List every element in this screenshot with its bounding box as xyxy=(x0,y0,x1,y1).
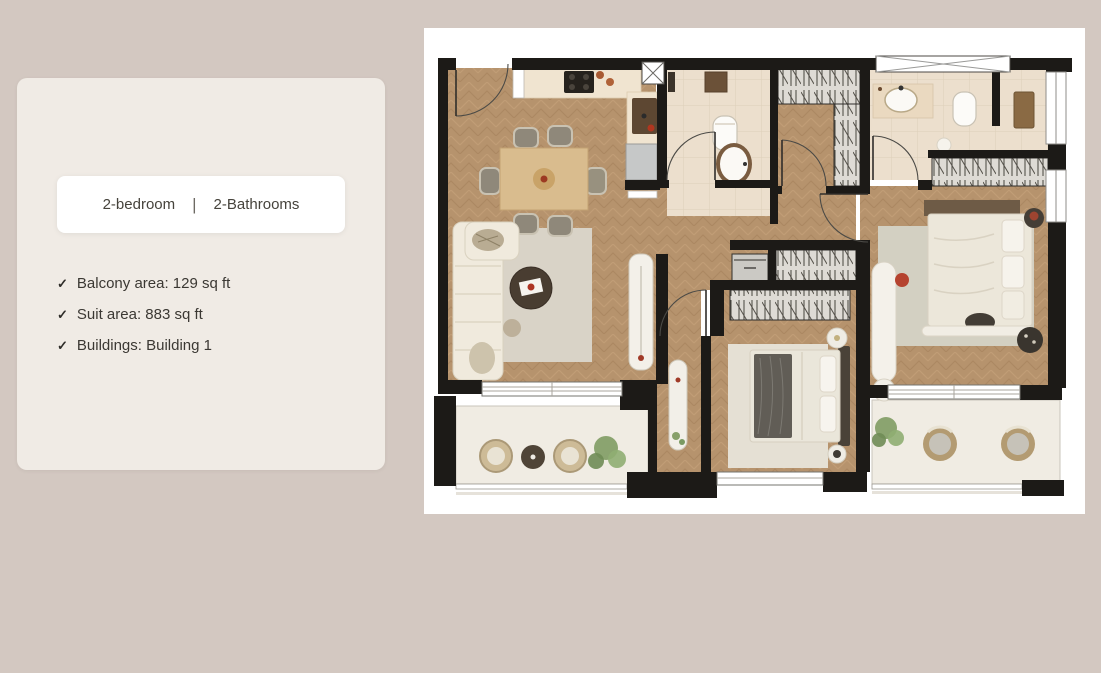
check-icon: ✓ xyxy=(57,274,68,294)
feature-balcony-area: ✓ Balcony area: 129 sq ft xyxy=(57,274,230,294)
pill-divider: | xyxy=(192,195,196,215)
summary-card: Total area: 1,012 sq ft 2-bedroom | 2-Ba… xyxy=(17,78,385,470)
balcony-1 xyxy=(456,406,648,495)
cooktop-icon xyxy=(564,71,594,93)
chair-icon xyxy=(548,126,572,146)
pot-icon xyxy=(596,71,604,79)
cabinet-icon xyxy=(705,72,727,92)
floorplan-svg xyxy=(424,28,1085,514)
feature-suit-area: ✓ Suit area: 883 sq ft xyxy=(57,305,230,325)
pot-icon xyxy=(606,78,614,86)
bedrooms-label: 2-bedroom xyxy=(103,196,176,213)
appliance-icon xyxy=(626,144,657,180)
armchair-icon xyxy=(923,427,957,461)
chair-icon xyxy=(586,168,606,194)
feature-text: Buildings: Building 1 xyxy=(77,336,212,356)
unit-type-pill: 2-bedroom | 2-Bathrooms xyxy=(57,176,345,233)
bench-icon xyxy=(1014,92,1034,128)
chair-icon xyxy=(514,128,538,148)
bathrooms-label: 2-Bathrooms xyxy=(214,196,300,213)
bathroom-sink-icon xyxy=(885,88,917,112)
feature-text: Balcony area: 129 sq ft xyxy=(77,274,230,294)
check-icon: ✓ xyxy=(57,336,68,356)
floorplan-panel xyxy=(424,28,1085,514)
armchair-icon xyxy=(1001,427,1035,461)
vase-icon xyxy=(895,273,909,287)
feature-text: Suit area: 883 sq ft xyxy=(77,305,203,325)
feature-buildings: ✓ Buildings: Building 1 xyxy=(57,336,230,356)
chair-icon xyxy=(480,168,500,194)
chaise-icon xyxy=(872,262,896,382)
side-table-icon xyxy=(1017,327,1043,353)
check-icon: ✓ xyxy=(57,305,68,325)
feature-list: ✓ Balcony area: 129 sq ft ✓ Suit area: 8… xyxy=(57,274,230,367)
chair-icon xyxy=(548,216,572,236)
balcony-2 xyxy=(872,400,1060,494)
toilet-icon xyxy=(953,92,976,126)
pouf-icon xyxy=(503,319,521,337)
page: Total area: 1,012 sq ft 2-bedroom | 2-Ba… xyxy=(0,0,1101,673)
kettle-icon xyxy=(648,125,655,132)
bench-icon xyxy=(922,326,1034,336)
